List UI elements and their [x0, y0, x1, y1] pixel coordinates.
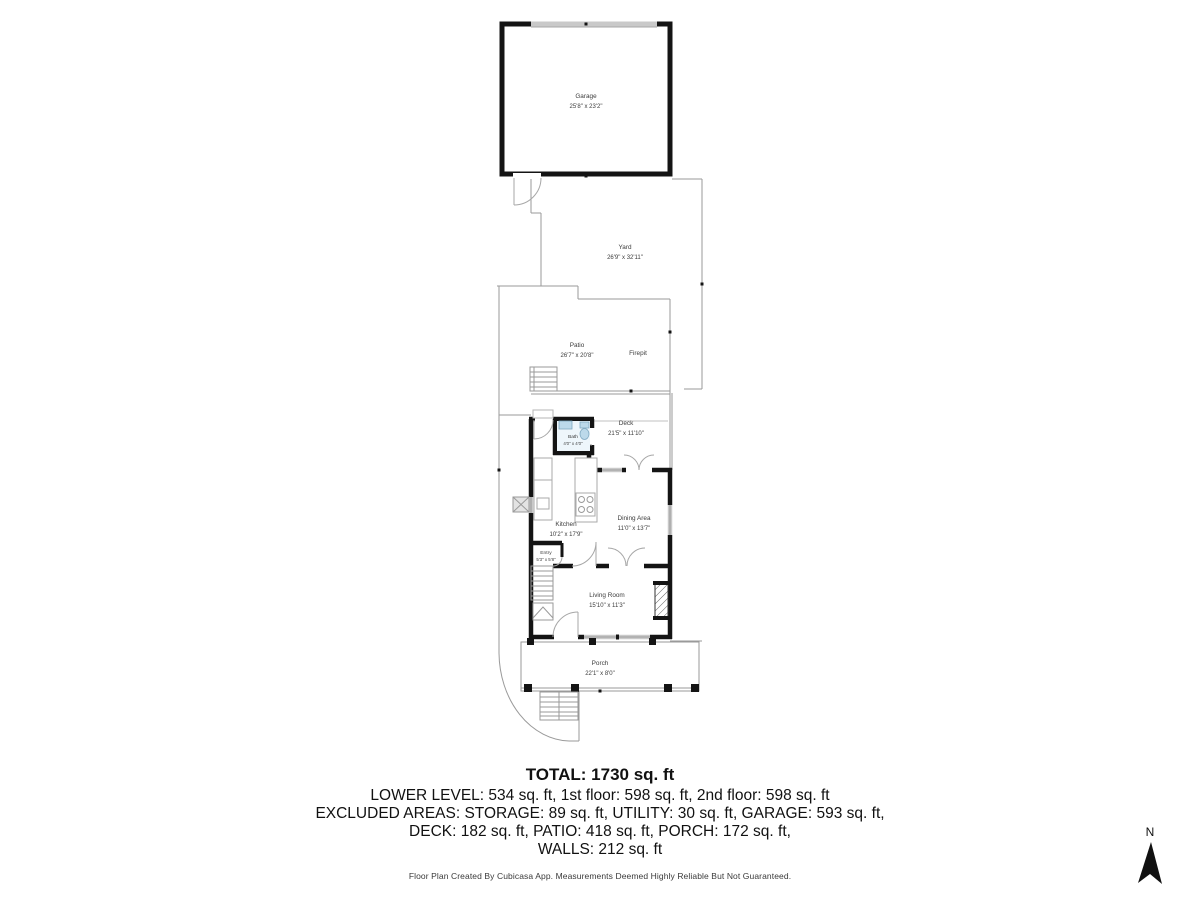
summary-line-excluded: EXCLUDED AREAS: STORAGE: 89 sq. ft, UTIL…: [0, 805, 1200, 823]
room-label-patio-name: Patio: [570, 342, 585, 349]
room-label-entry-name: Entry: [540, 550, 552, 556]
room-labels: Garage 25'8" x 23'2" Yard 26'9" x 32'11"…: [536, 93, 651, 677]
room-label-deck-dims: 21'5" x 11'10": [608, 431, 644, 437]
room-label-firepit: Firepit: [629, 350, 647, 357]
area-summary: TOTAL: 1730 sq. ft LOWER LEVEL: 534 sq. …: [0, 766, 1200, 859]
compass: N: [1126, 826, 1174, 892]
room-label-garage-dims: 25'8" x 23'2": [570, 104, 603, 110]
room-label-bath-dims: 4'0" x 4'0": [563, 441, 583, 446]
room-label-dining-dims: 11'0" x 13'7": [618, 526, 650, 532]
summary-line-deck-patio: DECK: 182 sq. ft, PATIO: 418 sq. ft, POR…: [0, 823, 1200, 841]
room-label-living-dims: 15'10" x 11'3": [589, 603, 625, 609]
garage-structure: [502, 24, 670, 205]
summary-total: TOTAL: 1730 sq. ft: [0, 766, 1200, 784]
room-label-deck-name: Deck: [619, 420, 634, 427]
porch-stairs: [540, 692, 578, 720]
kitchen-stove: [576, 493, 595, 516]
bath-toilet-tank: [580, 422, 589, 428]
room-label-bath-name: Bath: [568, 434, 578, 440]
room-label-kitchen-name: Kitchen: [555, 521, 577, 528]
room-label-yard-name: Yard: [618, 244, 631, 251]
bath-toilet: [580, 429, 589, 440]
kitchen-counter: [534, 458, 552, 520]
room-label-patio-dims: 26'7" x 20'8": [561, 353, 594, 359]
room-label-porch-name: Porch: [592, 660, 609, 667]
room-label-yard-dims: 26'9" x 32'11": [607, 255, 643, 261]
bath-sink: [559, 421, 572, 429]
disclaimer-text: Floor Plan Created By Cubicasa App. Meas…: [0, 871, 1200, 881]
porch-structure: [521, 638, 702, 720]
room-label-living-name: Living Room: [589, 592, 625, 599]
room-label-garage-name: Garage: [575, 93, 597, 100]
room-label-dining-name: Dining Area: [617, 515, 650, 522]
garage-yard-door-swing: [514, 178, 541, 205]
interior-stairs: [531, 566, 553, 600]
living-closet: [533, 603, 553, 620]
summary-line-walls: WALLS: 212 sq. ft: [0, 841, 1200, 859]
kitchen-sink: [537, 498, 549, 509]
summary-line-floors: LOWER LEVEL: 534 sq. ft, 1st floor: 598 …: [0, 787, 1200, 805]
porch-posts: [524, 638, 699, 692]
compass-north-arrow: [1130, 838, 1170, 888]
fireplace: [653, 581, 670, 620]
room-label-kitchen-dims: 10'2" x 17'9": [550, 532, 583, 538]
yard-boundary: [497, 179, 702, 741]
room-label-porch-dims: 22'1" x 8'0": [585, 671, 615, 677]
room-label-entry-dims: 5'3" x 5'8": [536, 557, 556, 562]
compass-north-label: N: [1126, 826, 1174, 838]
exterior-equipment-box: [513, 497, 529, 512]
patio-stairs: [530, 367, 557, 391]
deck-planter: [533, 410, 553, 418]
